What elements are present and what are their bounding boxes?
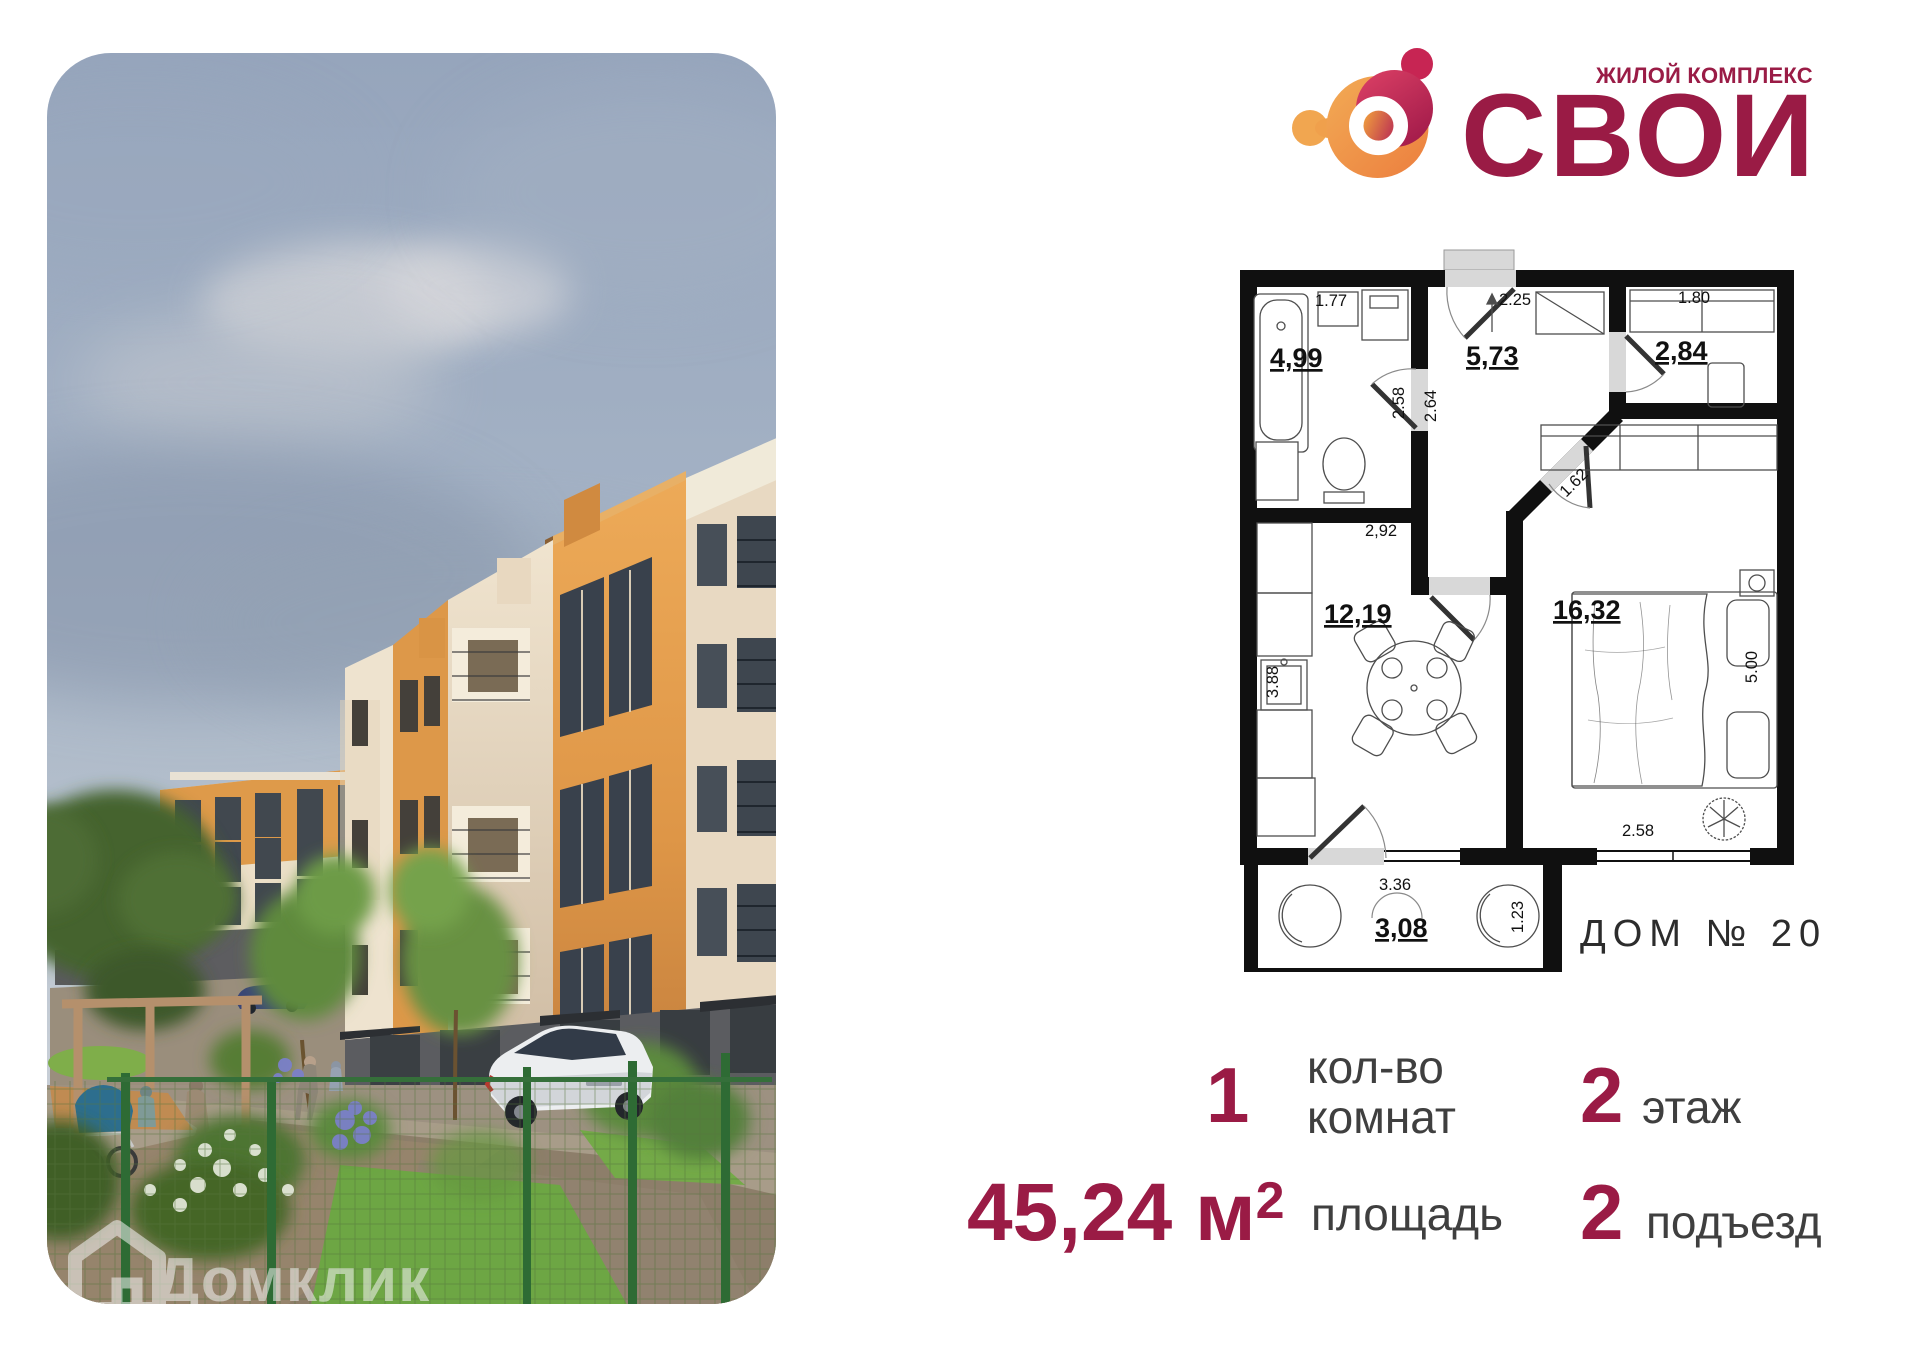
svg-text:2.25: 2.25 — [1499, 291, 1531, 309]
svg-text:1.23: 1.23 — [1509, 901, 1527, 933]
svg-text:Домклик: Домклик — [155, 1246, 430, 1304]
svg-text:3,08: 3,08 — [1375, 913, 1428, 943]
svg-text:2.58: 2.58 — [1390, 387, 1408, 419]
svg-text:2,92: 2,92 — [1365, 522, 1397, 540]
svg-text:12,19: 12,19 — [1324, 599, 1392, 629]
svg-text:2,84: 2,84 — [1655, 336, 1708, 366]
svg-text:16,32: 16,32 — [1553, 595, 1621, 625]
svg-text:5.00: 5.00 — [1743, 651, 1761, 683]
svg-text:2.64: 2.64 — [1422, 390, 1440, 422]
svg-text:1.77: 1.77 — [1315, 292, 1347, 310]
svg-text:1.80: 1.80 — [1678, 289, 1710, 307]
svg-text:3.88: 3.88 — [1264, 666, 1282, 698]
svg-text:3.36: 3.36 — [1379, 876, 1411, 894]
svg-text:2.58: 2.58 — [1622, 822, 1654, 840]
svg-text:4,99: 4,99 — [1270, 343, 1323, 373]
svg-text:5,73: 5,73 — [1466, 341, 1519, 371]
